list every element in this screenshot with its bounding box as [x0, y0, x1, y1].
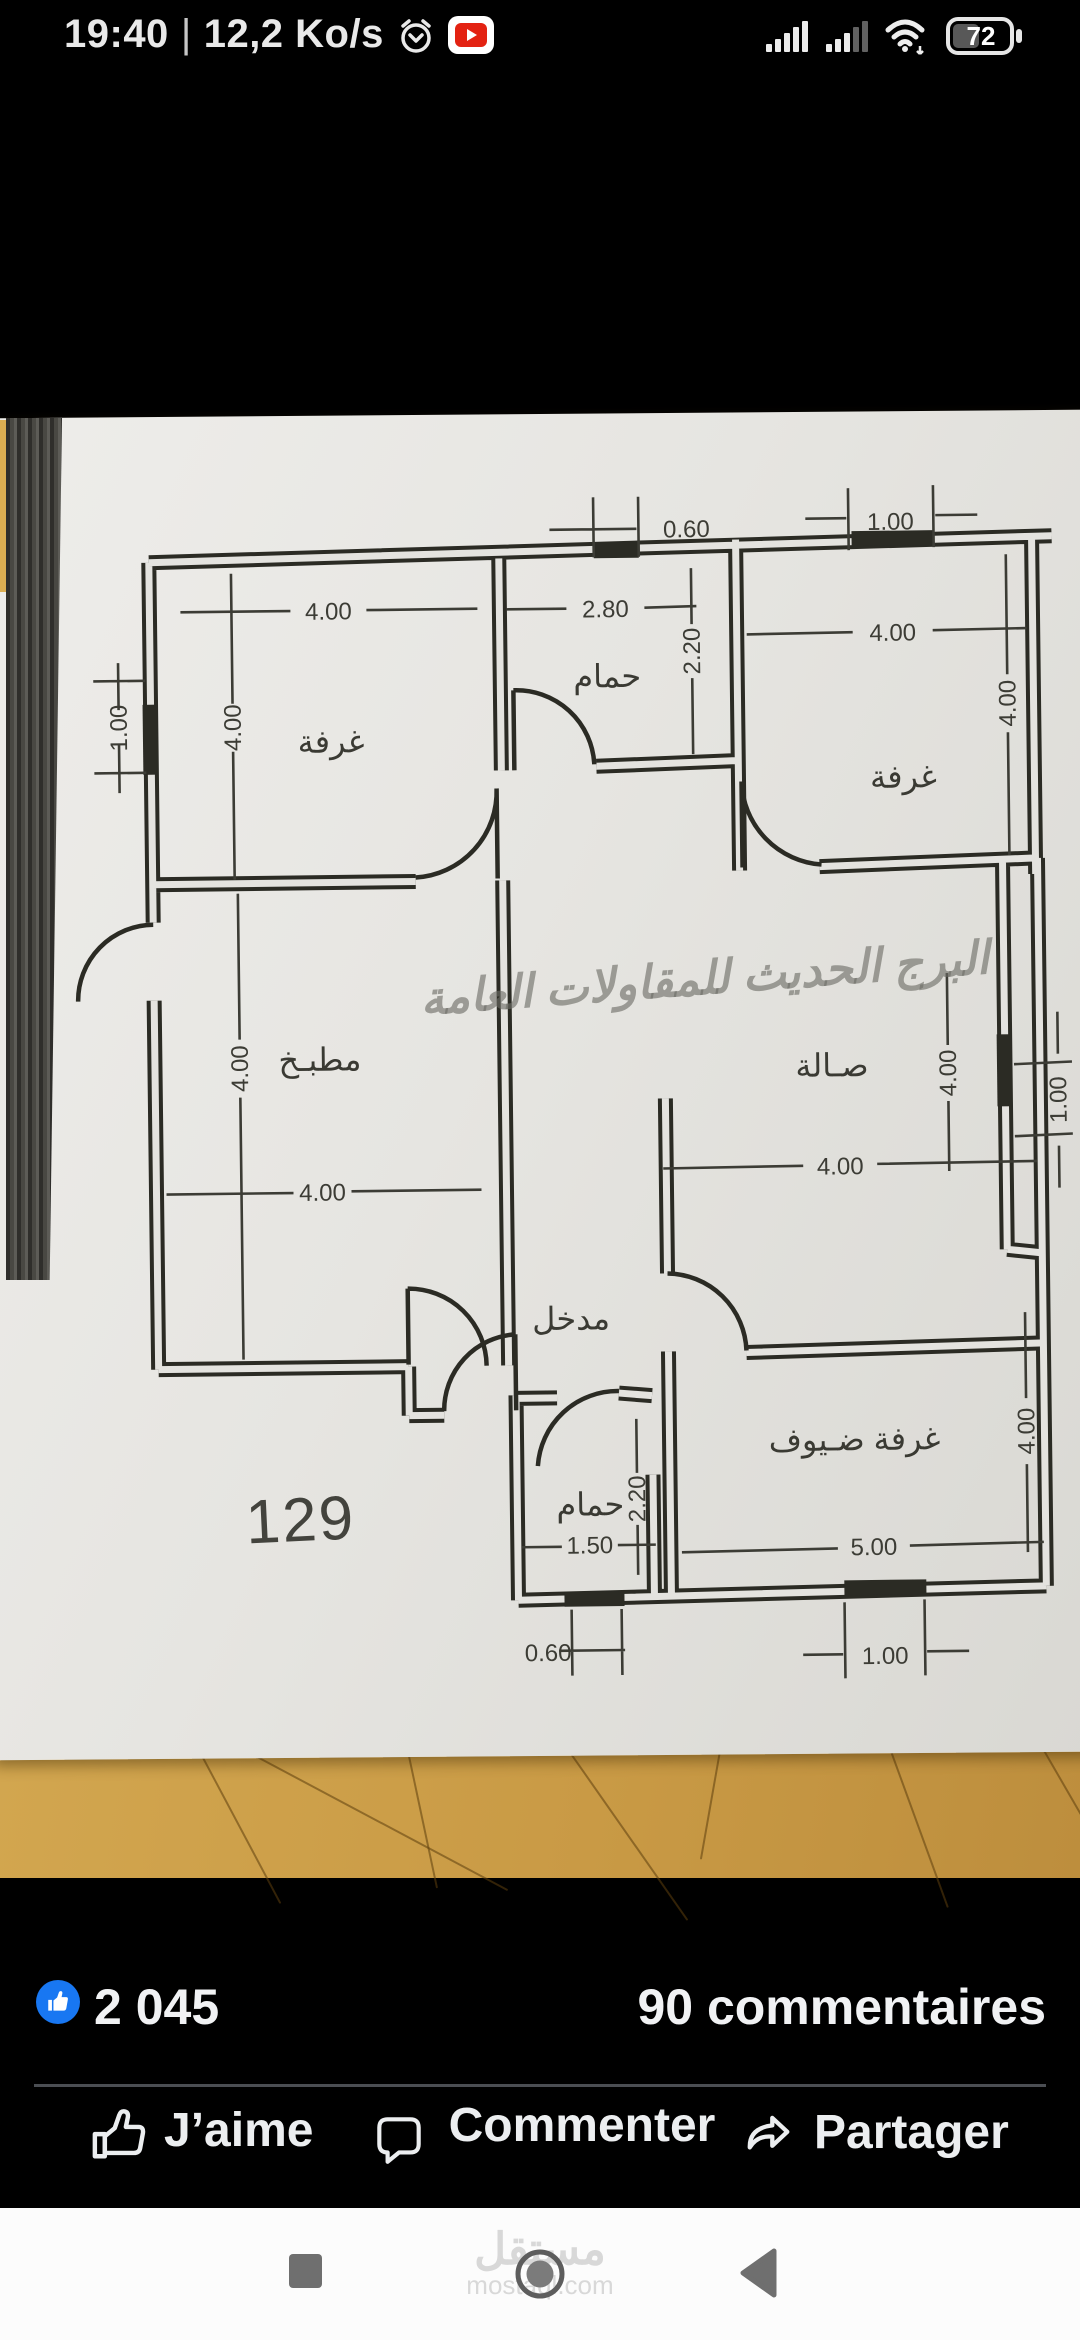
dim-right-window: 1.00 — [1045, 1076, 1073, 1123]
door-symbols — [74, 687, 828, 1472]
signal-icon-sim1 — [764, 18, 810, 54]
comment-bubble-icon — [370, 2110, 428, 2168]
signal-icon-sim2 — [824, 18, 870, 54]
dim-room-tr-width: 4.00 — [869, 619, 916, 647]
network-speed: 12,2 Ko/s — [204, 12, 384, 57]
dim-top-window-right: 1.00 — [867, 508, 914, 536]
reactions-summary-row: 2 045 90 commentaires — [0, 1978, 1080, 2034]
comments-count[interactable]: 90 commentaires — [637, 1978, 1046, 2036]
label-entrance: مدخل — [532, 1300, 610, 1337]
dim-top-window: 0.60 — [663, 516, 710, 544]
dim-hall-height: 4.00 — [935, 1049, 963, 1096]
clock-time: 19:40 — [64, 12, 169, 57]
label-hall: صـالة — [795, 1047, 869, 1084]
youtube-notification-icon — [448, 16, 494, 54]
dim-bath-top-width: 2.80 — [582, 596, 629, 624]
comment-button-label: Commenter — [444, 2102, 720, 2150]
label-bath-top: حمام — [573, 658, 641, 696]
dim-room-tl-width: 4.00 — [305, 598, 352, 626]
dim-bottom-window: 0.60 — [525, 1640, 572, 1668]
dim-left-window: 1.00 — [106, 705, 134, 752]
footer-divider — [34, 2084, 1046, 2087]
alarm-icon — [396, 13, 436, 57]
reaction-count[interactable]: 2 045 — [94, 1978, 219, 2036]
battery-icon: 72 — [946, 16, 1024, 56]
dim-kitchen-width: 4.00 — [299, 1179, 346, 1207]
dim-guest-height: 4.00 — [1013, 1408, 1041, 1455]
dim-kitchen-height: 4.00 — [227, 1045, 255, 1092]
dim-guest-width: 5.00 — [850, 1534, 897, 1562]
dim-hall-width: 4.00 — [817, 1153, 864, 1181]
back-button[interactable] — [734, 2244, 784, 2302]
label-room-top-right: غرفة — [870, 758, 937, 796]
sheet-number: 129 — [244, 1483, 357, 1557]
home-button[interactable] — [507, 2244, 573, 2308]
recents-button[interactable] — [289, 2254, 322, 2288]
thumb-up-outline-icon — [86, 2102, 148, 2164]
battery-percent: 72 — [967, 21, 996, 51]
like-button-label: J’aime — [164, 2102, 313, 2160]
system-navigation-bar: مستقل mostaql.com — [0, 2208, 1080, 2340]
floor-plan-drawing: 0.60 1.00 4.00 2.80 4.00 1.00 4.00 2.20 … — [0, 418, 1080, 1878]
share-button-label: Partager — [814, 2104, 1009, 2162]
post-image-floor-plan[interactable]: 0.60 1.00 4.00 2.80 4.00 1.00 4.00 2.20 … — [0, 418, 1080, 1878]
label-guest-room: غرفة ضـيوف — [769, 1420, 941, 1459]
share-arrow-icon — [738, 2104, 798, 2164]
dim-room-tl-height: 4.00 — [220, 704, 248, 751]
like-button[interactable]: J’aime — [86, 2102, 313, 2164]
label-room-top-left: غرفة — [297, 723, 364, 761]
dim-bath-bottom-height: 2.20 — [624, 1475, 652, 1522]
wifi-icon — [884, 16, 932, 56]
dim-bath-top-height: 2.20 — [679, 628, 707, 675]
dim-bath-bottom-width: 1.50 — [566, 1532, 613, 1560]
label-bath-bottom: حمام — [556, 1486, 624, 1524]
like-reaction-badge[interactable] — [36, 1980, 80, 2024]
thumb-up-filled-icon — [45, 1989, 71, 2015]
share-button[interactable]: Partager — [738, 2104, 1009, 2164]
status-separator: | — [181, 12, 192, 57]
status-bar: 19:40 | 12,2 Ko/s — [0, 0, 1080, 80]
dim-room-tr-height: 4.00 — [994, 680, 1022, 727]
comment-button[interactable]: Commenter — [370, 2102, 720, 2168]
label-kitchen: مطبـخ — [278, 1041, 362, 1079]
dim-bottom-window-right: 1.00 — [862, 1643, 909, 1671]
